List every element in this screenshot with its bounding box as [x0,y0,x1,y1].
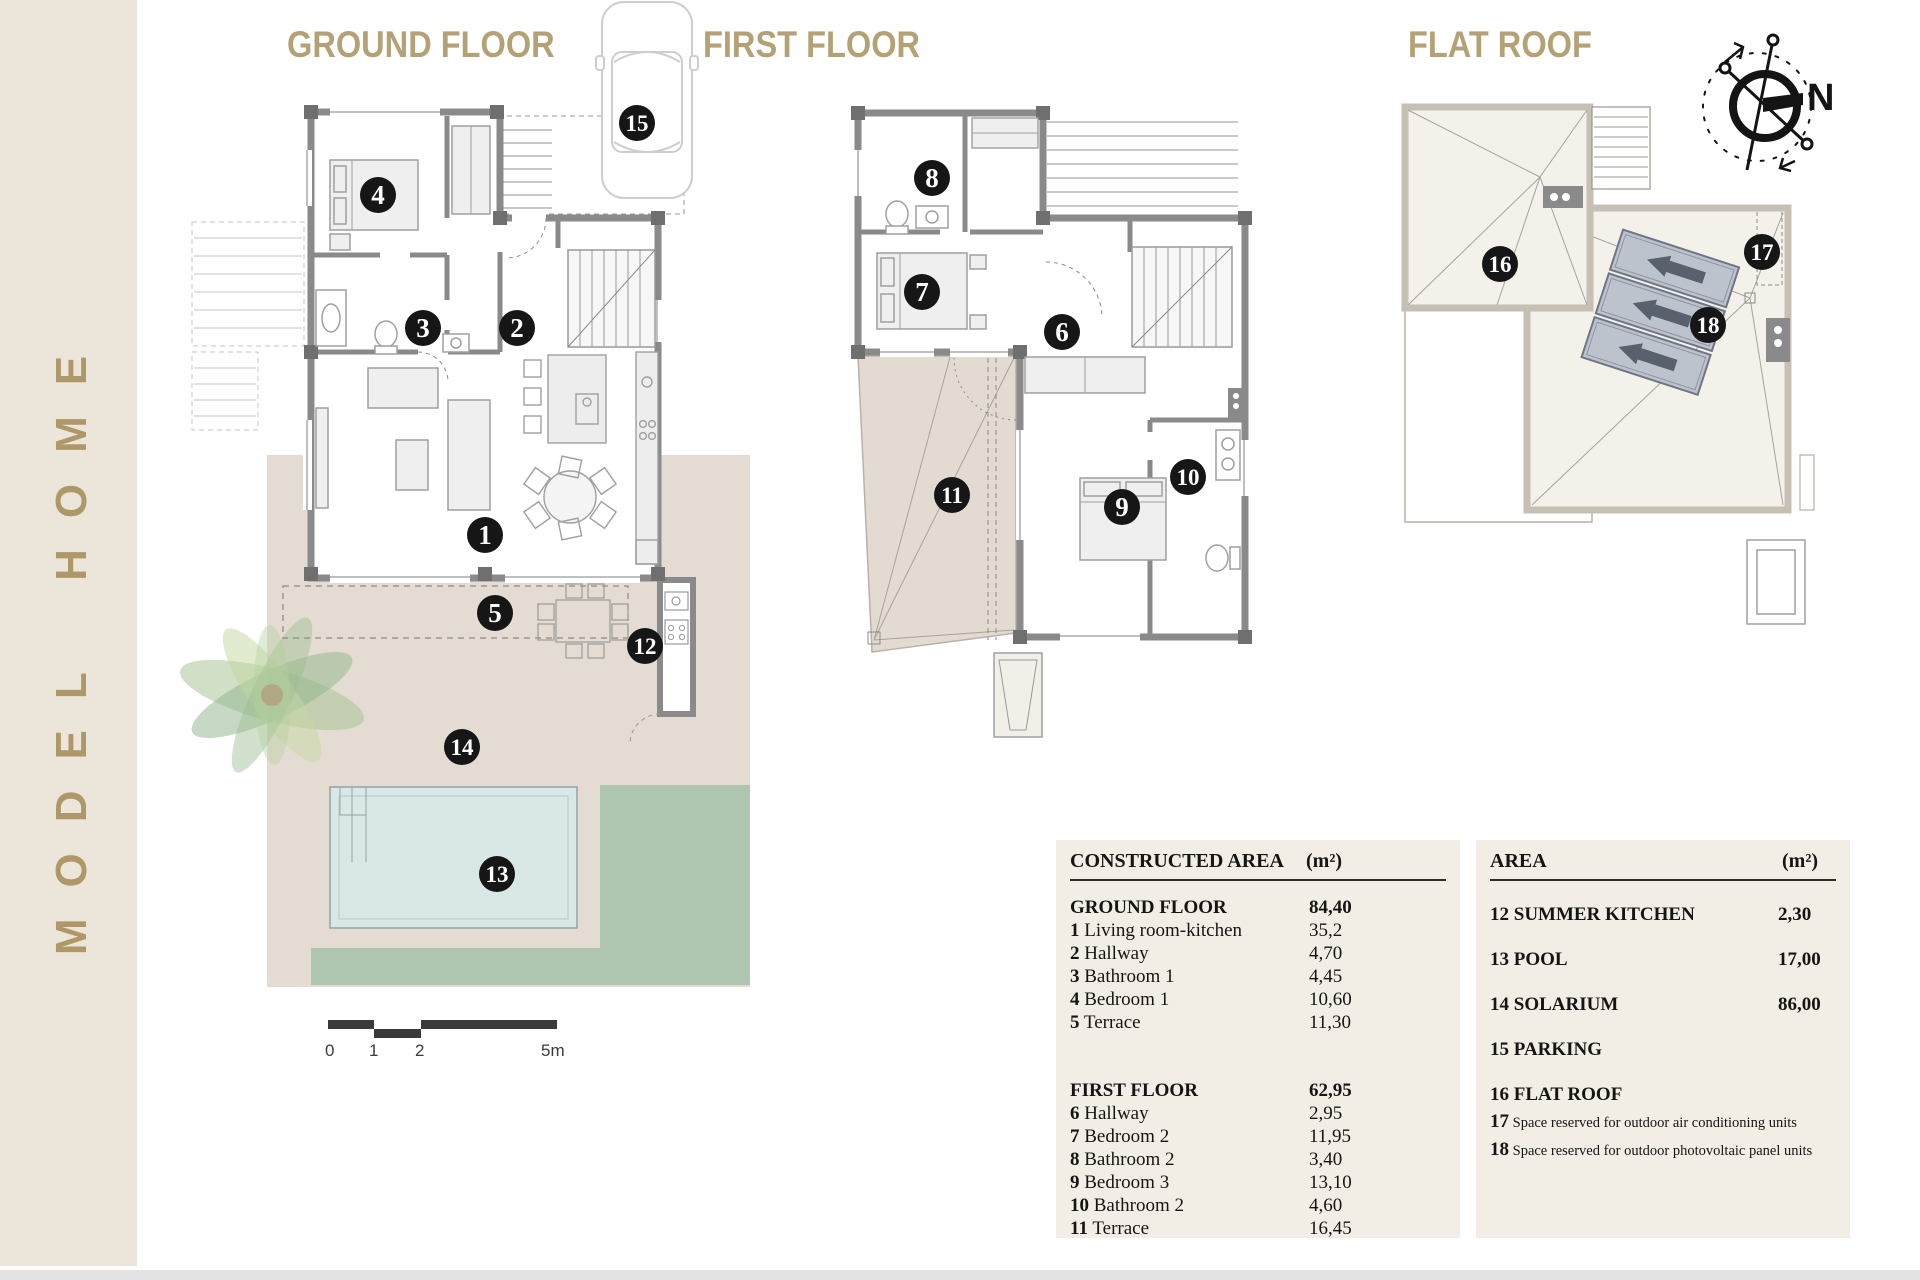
table-row: 5 Terrace11,30 [1070,1011,1446,1034]
compass-rose: N [1695,32,1835,172]
header-unit: (m²) [1782,848,1818,874]
svg-text:8: 8 [925,163,939,193]
table-row: 15 PARKING [1490,1038,1836,1061]
room-marker-8: 8 [914,160,950,196]
dressing-shelves [972,118,1038,148]
title-first-floor: FIRST FLOOR [703,24,920,66]
table-row: 7 Bedroom 211,95 [1070,1125,1446,1148]
staircase [568,250,655,347]
table-row: 2 Hallway4,70 [1070,942,1446,965]
table-row: 13 POOL17,00 [1490,948,1836,971]
table-row: 8 Bathroom 23,40 [1070,1148,1446,1171]
svg-text:15: 15 [626,111,649,136]
entrance-pergola-stripes [1047,122,1238,206]
room-marker-13: 13 [479,856,515,892]
table-row: 6 Hallway2,95 [1070,1102,1446,1125]
table-row: 9 Bedroom 313,10 [1070,1171,1446,1194]
room-marker-5: 5 [477,595,513,631]
table-row: 16 FLAT ROOF [1490,1083,1836,1106]
room-marker-16: 16 [1482,246,1518,282]
table-row: 11 Terrace16,45 [1070,1217,1446,1240]
sidebar: MODEL HOME [0,0,137,1266]
flat-roof-plan: 16 17 18 [1395,95,1885,675]
scale-bar: 0 1 2 5m [325,1020,565,1060]
room-marker-17: 17 [1744,234,1780,270]
svg-text:1: 1 [478,520,492,550]
table-row: 10 Bathroom 24,60 [1070,1194,1446,1217]
constructed-area-table: CONSTRUCTED AREA (m²) GROUND FLOOR 84,40… [1056,840,1460,1238]
scale-0: 0 [325,1041,334,1060]
neighbour-outline [192,222,304,430]
vent-unit [1228,388,1245,418]
svg-text:11: 11 [941,483,963,508]
room-marker-12: 12 [627,628,663,664]
compass-arrowhead-bottom [1780,158,1795,171]
svg-text:13: 13 [486,862,509,887]
svg-text:9: 9 [1115,492,1129,522]
room-marker-15: 15 [619,105,655,141]
title-flat-roof: FLAT ROOF [1408,24,1592,66]
constructed-table-header: CONSTRUCTED AREA (m²) [1070,848,1446,881]
svg-text:4: 4 [371,180,385,210]
ground-floor-group: GROUND FLOOR 84,40 1 Living room-kitchen… [1070,896,1446,1034]
first-floor-plan: 8 7 6 11 9 10 [840,85,1300,765]
svg-text:18: 18 [1697,313,1720,338]
table-note: 18 Space reserved for outdoor photovolta… [1490,1139,1836,1162]
roof-notch [1800,455,1814,510]
svg-text:17: 17 [1751,240,1774,265]
exterior-stair [994,653,1042,737]
room-marker-11: 11 [934,477,970,513]
table-row: 14 SOLARIUM86,00 [1490,993,1836,1016]
svg-text:5: 5 [488,598,502,628]
area-table: AREA (m²) 12 SUMMER KITCHEN2,30 13 POOL1… [1476,840,1850,1238]
balcony-outline [1747,540,1805,624]
svg-text:10: 10 [1177,465,1200,490]
area-table-header: AREA (m²) [1490,848,1836,881]
ground-floor-plan: 0 1 2 5m 4 3 2 1 5 12 14 13 15 [150,0,750,1080]
header-label: AREA [1490,850,1547,872]
header-label: CONSTRUCTED AREA [1070,850,1284,872]
room-marker-1: 1 [467,517,503,553]
svg-text:16: 16 [1489,252,1512,277]
title-ground-floor: GROUND FLOOR [287,24,555,66]
north-label: N [1807,77,1834,119]
room-marker-3: 3 [405,310,441,346]
room-marker-10: 10 [1170,459,1206,495]
page-bottom-edge [0,1270,1920,1280]
scale-2: 2 [415,1041,424,1060]
stair-hatch [1592,107,1650,189]
svg-text:12: 12 [634,634,657,659]
room-marker-9: 9 [1104,489,1140,525]
staircase [1132,247,1232,347]
table-row: 3 Bathroom 14,45 [1070,965,1446,988]
scale-5m: 5m [541,1041,565,1060]
brand-title: MODEL HOME [47,325,97,955]
room-marker-6: 6 [1044,314,1080,350]
room-marker-2: 2 [499,310,535,346]
table-row: 4 Bedroom 110,60 [1070,988,1446,1011]
table-row: 12 SUMMER KITCHEN2,30 [1490,903,1836,926]
svg-text:14: 14 [451,735,475,760]
first-floor-group: FIRST FLOOR 62,95 6 Hallway2,95 7 Bedroo… [1070,1079,1446,1240]
room-marker-14: 14 [444,729,480,765]
room-marker-4: 4 [360,177,396,213]
svg-text:2: 2 [510,313,524,343]
group-total-row: GROUND FLOOR 84,40 [1070,896,1446,919]
header-unit: (m²) [1306,848,1342,874]
car-outline [596,2,698,198]
group-total-row: FIRST FLOOR 62,95 [1070,1079,1446,1102]
room-marker-7: 7 [904,274,940,310]
compass-arrowhead-top [1725,43,1743,62]
parking-canopy-stripes [502,130,552,208]
roof-vent-2 [1766,318,1790,362]
floorplan-sheet: { "sidebar": { "title": "MODEL HOME" }, … [0,0,1920,1280]
table-note: 17 Space reserved for outdoor air condit… [1490,1111,1836,1134]
roof-vent-1 [1543,186,1583,208]
svg-text:7: 7 [915,277,929,307]
pool [330,787,577,928]
svg-text:3: 3 [416,313,430,343]
scale-1: 1 [369,1041,378,1060]
svg-text:6: 6 [1055,317,1069,347]
table-row: 1 Living room-kitchen35,2 [1070,919,1446,942]
room-marker-18: 18 [1690,307,1726,343]
